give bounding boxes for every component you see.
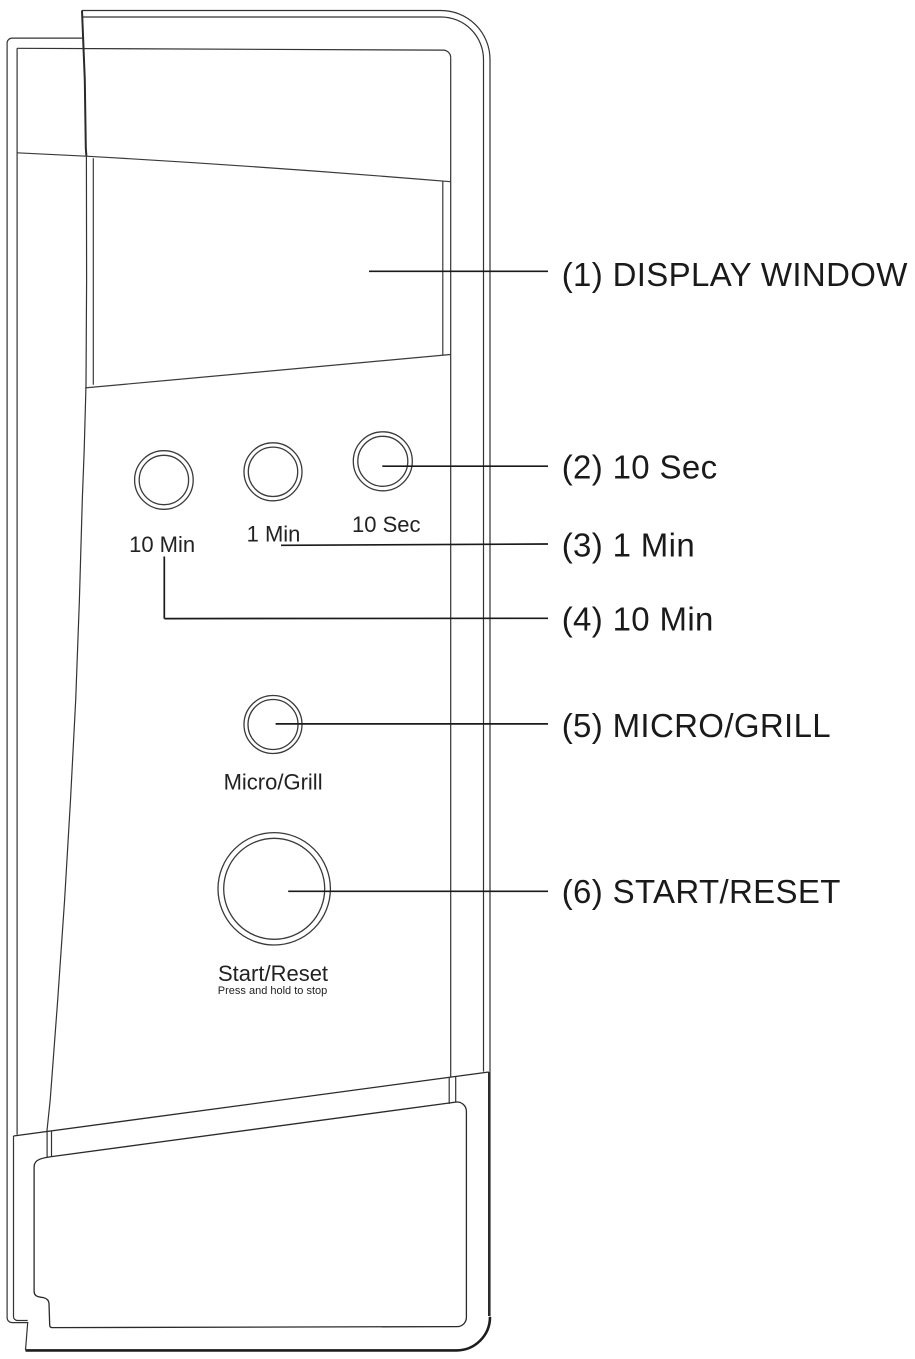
svg-text:10 Sec: 10 Sec [352, 512, 421, 537]
svg-text:Start/Reset: Start/Reset [218, 961, 328, 986]
svg-text:(1) DISPLAY WINDOW: (1) DISPLAY WINDOW [562, 256, 909, 293]
svg-text:1 Min: 1 Min [247, 522, 301, 547]
svg-text:(2) 10 Sec: (2) 10 Sec [562, 449, 718, 486]
svg-text:Press and hold to stop: Press and hold to stop [218, 985, 327, 997]
svg-text:(4) 10 Min: (4) 10 Min [562, 601, 714, 638]
svg-text:(6) START/RESET: (6) START/RESET [562, 873, 841, 910]
svg-text:(5) MICRO/GRILL: (5) MICRO/GRILL [562, 707, 831, 744]
svg-text:Micro/Grill: Micro/Grill [224, 770, 323, 795]
svg-text:10 Min: 10 Min [129, 532, 195, 557]
svg-text:(3) 1 Min: (3) 1 Min [562, 527, 695, 564]
